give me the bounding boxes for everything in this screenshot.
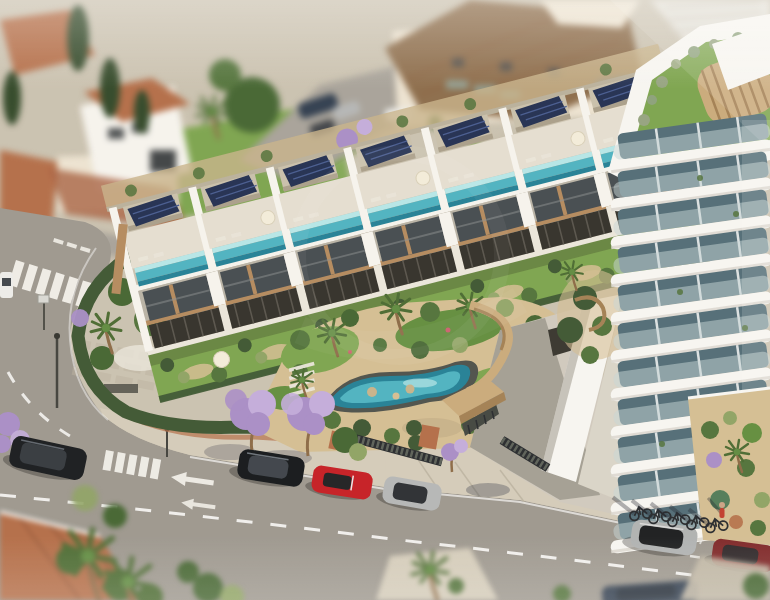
warm-tint bbox=[0, 0, 770, 600]
render-scene bbox=[0, 0, 770, 600]
aerial-render bbox=[0, 0, 770, 600]
